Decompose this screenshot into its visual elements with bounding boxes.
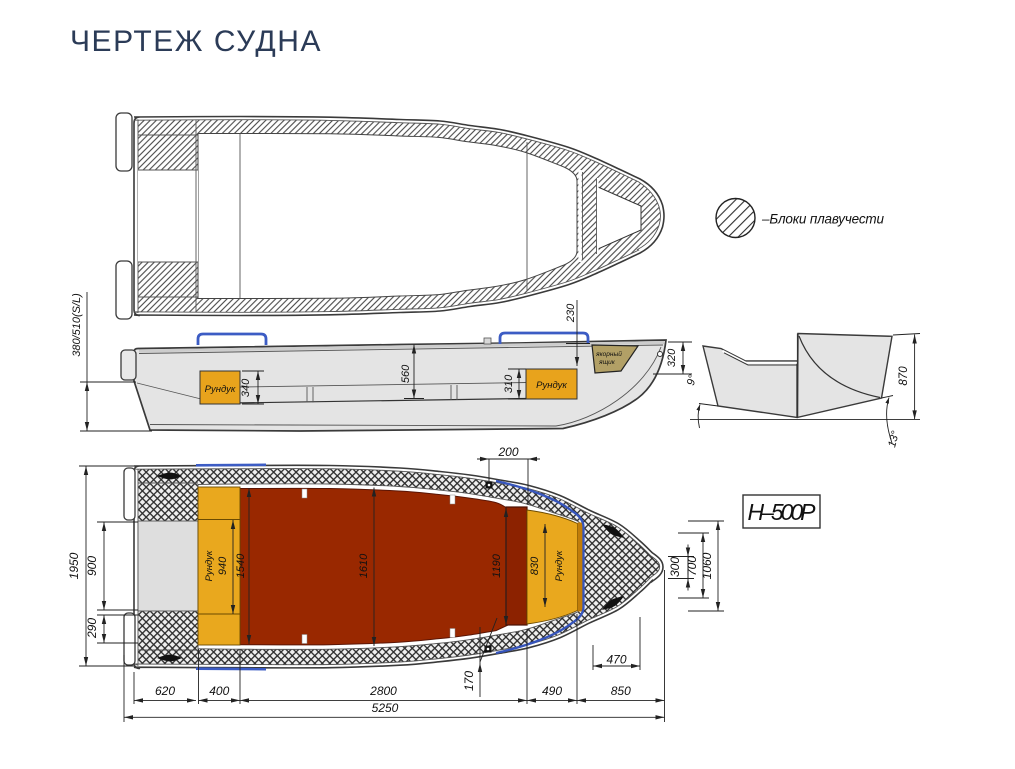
svg-text:470: 470 bbox=[606, 653, 626, 667]
svg-text:1190: 1190 bbox=[491, 553, 503, 578]
svg-text:Рундук: Рундук bbox=[554, 550, 565, 581]
svg-text:380/510(S/L): 380/510(S/L) bbox=[71, 293, 83, 357]
svg-text:870: 870 bbox=[898, 366, 910, 386]
svg-text:1540: 1540 bbox=[235, 553, 247, 578]
svg-text:490: 490 bbox=[542, 684, 562, 698]
svg-text:Н–500Р: Н–500Р bbox=[748, 499, 817, 525]
svg-text:Рундук: Рундук bbox=[204, 550, 215, 581]
svg-text:940: 940 bbox=[217, 556, 229, 575]
svg-text:Рундук: Рундук bbox=[205, 384, 236, 395]
svg-text:1610: 1610 bbox=[358, 553, 370, 578]
svg-text:ЧЕРТЕЖ СУДНА: ЧЕРТЕЖ СУДНА bbox=[70, 25, 322, 58]
svg-text:9°: 9° bbox=[685, 373, 699, 387]
svg-text:900: 900 bbox=[85, 556, 99, 576]
svg-text:1060: 1060 bbox=[700, 552, 714, 579]
svg-text:310: 310 bbox=[503, 374, 515, 393]
svg-text:290: 290 bbox=[85, 618, 99, 639]
svg-text:200: 200 bbox=[497, 445, 518, 459]
svg-text:400: 400 bbox=[209, 684, 229, 698]
svg-text:620: 620 bbox=[155, 684, 175, 698]
svg-text:1950: 1950 bbox=[67, 552, 81, 579]
svg-text:300: 300 bbox=[668, 557, 682, 577]
svg-text:Рундук: Рундук bbox=[536, 380, 567, 391]
svg-text:850: 850 bbox=[611, 684, 631, 698]
svg-text:170: 170 bbox=[462, 671, 476, 691]
svg-text:5250: 5250 bbox=[372, 701, 399, 715]
svg-text:2800: 2800 bbox=[369, 684, 397, 698]
svg-text:340: 340 bbox=[240, 378, 252, 397]
svg-text:700: 700 bbox=[685, 556, 699, 576]
svg-text:230: 230 bbox=[565, 303, 577, 323]
svg-text:320: 320 bbox=[666, 348, 678, 367]
svg-text:560: 560 bbox=[400, 364, 412, 383]
svg-text:–Блоки плавучести: –Блоки плавучести bbox=[761, 212, 884, 227]
svg-text:якорный: якорный bbox=[595, 350, 622, 358]
svg-text:ящик: ящик bbox=[598, 359, 616, 366]
svg-text:830: 830 bbox=[529, 556, 541, 575]
